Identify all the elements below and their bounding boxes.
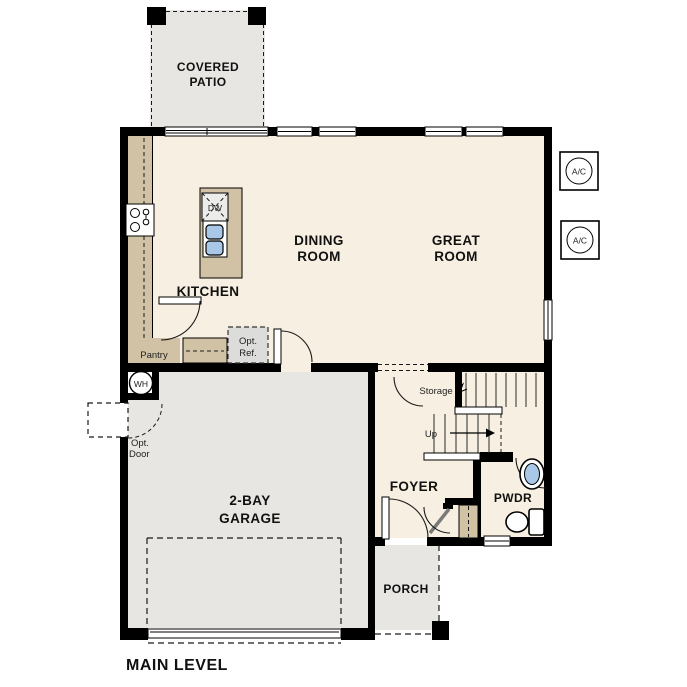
covered-patio: COVERED PATIO	[147, 7, 266, 127]
porch-post	[432, 621, 449, 640]
wall-mid-a	[120, 363, 281, 372]
great-label-2: ROOM	[434, 249, 478, 264]
great-label-1: GREAT	[432, 233, 481, 248]
porch-label: PORCH	[383, 582, 428, 596]
pwdr-window	[484, 536, 510, 546]
front-door-leaf	[382, 497, 389, 539]
garage-label-2: GARAGE	[219, 511, 281, 526]
patio-label-2: PATIO	[190, 75, 227, 89]
optional-refrigerator: Opt. Ref.	[228, 327, 268, 363]
understair-wall	[459, 505, 478, 538]
opt-door-label-1: Opt.	[131, 438, 149, 449]
great-room-window-1	[425, 127, 462, 136]
ac-unit-1: A/C	[560, 152, 598, 190]
pantry-label: Pantry	[140, 350, 168, 361]
great-room-window-2	[466, 127, 503, 136]
pwdr-wall-bottom	[510, 537, 552, 546]
kitchen-sink	[203, 221, 227, 257]
pwdr-label: PWDR	[494, 491, 532, 505]
stair-rail-bottom	[424, 453, 480, 460]
garage-wall-bottom-left	[120, 628, 148, 640]
floor-plan-page: COVERED PATIO	[0, 0, 687, 687]
patio-post-right	[248, 7, 266, 25]
wall-left	[120, 127, 128, 372]
opt-ref-label-1: Opt.	[239, 336, 257, 347]
up-label: Up	[425, 429, 437, 440]
ac-unit-2-label: A/C	[573, 236, 587, 246]
patio-post-left	[147, 7, 166, 25]
ac-unit-2: A/C	[561, 221, 599, 259]
great-room-side-window	[544, 300, 552, 340]
opt-ref-label-2: Ref.	[239, 348, 256, 359]
garage-entry-leaf	[274, 329, 281, 364]
garage-label-1: 2-BAY	[229, 493, 270, 508]
stove-cooktop	[126, 204, 154, 236]
water-heater: WH	[128, 372, 153, 395]
foyer-label: FOYER	[390, 479, 439, 494]
dining-label-1: DINING	[294, 233, 344, 248]
dw-label: DW	[208, 203, 222, 213]
patio-label-1: COVERED	[177, 60, 239, 74]
stair-base-wall	[480, 452, 513, 462]
closet-wall-stub	[443, 503, 453, 509]
dining-window-2	[319, 127, 356, 136]
plan-title: MAIN LEVEL	[126, 657, 228, 674]
dining-label-2: ROOM	[297, 249, 341, 264]
dining-window-1	[277, 127, 312, 136]
stair-rail-mid	[455, 407, 502, 414]
dishwasher: DW	[202, 193, 228, 221]
wh-label: WH	[134, 379, 148, 389]
garage-wall-right	[368, 372, 375, 640]
garage-wall-bottom-right	[341, 628, 375, 640]
kitchen-counter	[128, 136, 152, 340]
ac-unit-1-label: A/C	[572, 167, 586, 177]
wall-mid-b	[311, 363, 378, 372]
storage-label: Storage	[419, 386, 452, 397]
cased-opening	[378, 363, 428, 372]
kitchen-island: DW	[200, 188, 242, 278]
floor-plan-drawing: COVERED PATIO	[0, 0, 687, 687]
patio-slider-door	[165, 127, 268, 136]
pantry-door-leaf	[159, 297, 201, 304]
opt-door-label-2: Door	[129, 449, 150, 460]
garage-door-panel	[148, 629, 341, 638]
pwdr-sink	[520, 459, 544, 489]
wall-mid-c	[428, 363, 552, 372]
